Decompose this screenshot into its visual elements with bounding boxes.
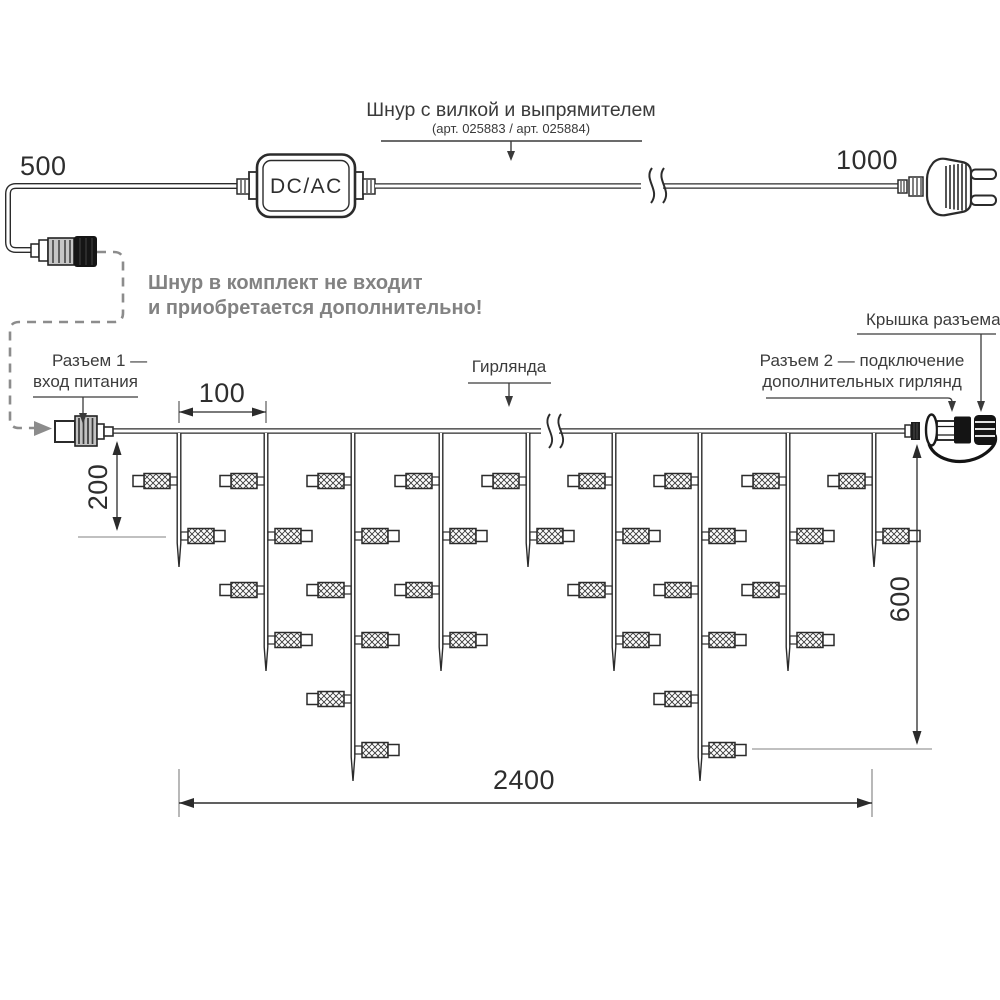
dim-600-label: 600 [884, 576, 918, 623]
power-cord-right-cable [375, 168, 899, 203]
connector-2-plug [954, 417, 971, 444]
lamp-icon [790, 529, 834, 544]
lamp-icon [220, 583, 264, 598]
connector-2-label-line2: дополнительных гирлянд [762, 371, 962, 392]
dim-500-label: 500 [20, 150, 67, 184]
note-line-1: Шнур в комплект не входит [148, 271, 423, 296]
lamp-icon [220, 474, 264, 489]
lamp-icon [568, 474, 612, 489]
lamp-icon [654, 474, 698, 489]
lamp-icon [482, 474, 526, 489]
converter-label: DC/AC [270, 174, 343, 200]
garland-strand [439, 433, 443, 671]
lights-garland-diagram: 500 1000 Шнур с вилкой и выпрямителем (а… [0, 0, 1000, 1000]
lamp-icon [654, 583, 698, 598]
lamp-icon [181, 529, 225, 544]
note-line-2: и приобретается дополнительно! [148, 296, 482, 321]
lamp-icon [702, 743, 746, 758]
dashed-leader-not-included [10, 252, 123, 436]
lamp-icon [616, 633, 660, 648]
dim-2400-label: 2400 [493, 764, 555, 798]
garland-strand [351, 433, 355, 781]
lamp-icon [355, 743, 399, 758]
title-leader [381, 141, 642, 161]
garland-strand [786, 433, 790, 671]
lamp-icon [828, 474, 872, 489]
connector-2-label-line1: Разъем 2 — подключение [760, 350, 965, 371]
garland-strand [177, 433, 181, 567]
lamp-icon [530, 529, 574, 544]
cord-title: Шнур с вилкой и выпрямителем [366, 98, 655, 122]
lamp-icon [355, 633, 399, 648]
title-arrowhead [507, 151, 515, 161]
lamp-icon [395, 474, 439, 489]
lamp-icon [742, 474, 786, 489]
garland-strand [872, 433, 876, 567]
lamp-icon [133, 474, 177, 489]
garland-strands [133, 433, 920, 781]
cord-end-connector [31, 236, 97, 267]
dim-100-label: 100 [199, 377, 246, 411]
connector-cap [974, 415, 996, 445]
lamp-icon [443, 529, 487, 544]
lamp-icon [307, 474, 351, 489]
lamp-icon [876, 529, 920, 544]
garland-strand [698, 433, 702, 781]
garland-strand [264, 433, 268, 671]
cap-label: Крышка разъема [866, 309, 1000, 330]
power-plug-icon [898, 159, 996, 216]
connector-1-label-line2: вход питания [33, 371, 138, 392]
garland-label-leader [468, 383, 551, 407]
lamp-icon [355, 529, 399, 544]
lamp-icon [307, 583, 351, 598]
lamp-icon [568, 583, 612, 598]
garland-strand [612, 433, 616, 671]
lamp-icon [443, 633, 487, 648]
cord-subtitle: (арт. 025883 / арт. 025884) [432, 121, 590, 137]
lamp-icon [268, 529, 312, 544]
connector-2-leader [766, 398, 956, 412]
lamp-icon [395, 583, 439, 598]
lamp-icon [702, 633, 746, 648]
lamp-icon [790, 633, 834, 648]
lamp-icon [268, 633, 312, 648]
garland-label: Гирлянда [472, 356, 547, 377]
connector-1-label-line1: Разъем 1 — [52, 350, 147, 371]
garland-strand [526, 433, 530, 567]
dashed-arrowhead [34, 421, 52, 436]
dim-200-label: 200 [82, 464, 116, 511]
lamp-icon [307, 692, 351, 707]
lamp-icon [702, 529, 746, 544]
lamp-icon [742, 583, 786, 598]
lamp-icon [616, 529, 660, 544]
dim-1000-label: 1000 [836, 144, 898, 178]
lamp-icon [654, 692, 698, 707]
